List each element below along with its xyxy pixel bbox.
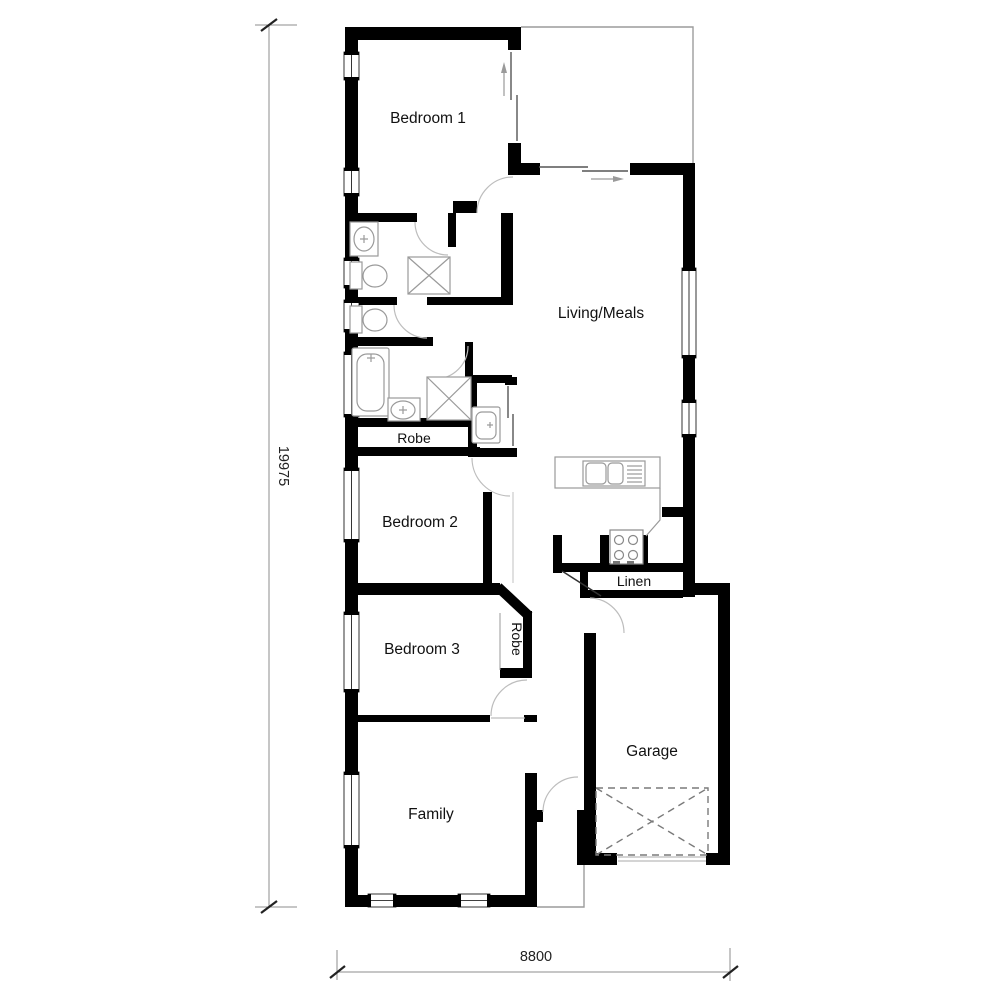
window-glyph	[344, 52, 359, 55]
bathroom-shower	[427, 377, 471, 420]
bedroom2-door	[472, 458, 510, 496]
garage-door-cross	[596, 788, 708, 855]
rear-door	[543, 777, 578, 812]
window-glyph	[487, 894, 490, 907]
window-glyph	[344, 845, 359, 848]
window-glyph	[682, 268, 696, 271]
label-garage: Garage	[626, 743, 678, 760]
vanity-basin	[388, 398, 420, 421]
dim-width: 8800	[520, 949, 552, 965]
dim-depth: 19975	[275, 446, 291, 486]
ensuite-door	[415, 222, 448, 255]
garage-door-panel	[618, 857, 706, 861]
window-glyph	[682, 400, 696, 403]
window-glyph	[344, 772, 359, 775]
bathroom-door	[435, 346, 468, 379]
ensuite-shower	[408, 257, 450, 294]
floor-plan-canvas: Bedroom 1 Living/Meals Robe Bedroom 2 Be…	[0, 0, 1000, 1000]
wc-door	[394, 305, 427, 338]
label-bedroom2: Bedroom 2	[382, 514, 458, 531]
label-family: Family	[408, 806, 454, 823]
label-bedroom3: Bedroom 3	[384, 641, 460, 658]
window-glyph	[344, 689, 359, 692]
bath	[352, 348, 389, 416]
cooktop	[610, 530, 643, 564]
kitchen-sink	[583, 461, 645, 486]
floor-plan-drawing: Bedroom 1 Living/Meals Robe Bedroom 2 Be…	[0, 0, 1000, 1000]
ensuite-toilet	[350, 262, 387, 289]
window-glyph	[368, 894, 371, 907]
ensuite-basin	[350, 222, 378, 256]
window-glyph	[344, 300, 359, 303]
garage-access-door	[590, 598, 624, 633]
window-glyph	[344, 168, 359, 171]
window-glyph	[344, 77, 359, 80]
bedroom3-door	[491, 680, 527, 716]
window-glyph	[344, 468, 359, 471]
dimension-ticks	[261, 19, 738, 978]
window-glyph	[344, 612, 359, 615]
label-living-meals: Living/Meals	[558, 305, 644, 322]
window-glyph	[458, 894, 461, 907]
window-glyph	[344, 193, 359, 196]
wc-toilet	[350, 306, 387, 333]
window-glyph	[682, 355, 696, 358]
window-glyph	[344, 539, 359, 542]
label-robe-main: Robe	[397, 430, 431, 446]
window-glyph	[393, 894, 396, 907]
sliding-doors	[508, 52, 628, 446]
window-glyph	[682, 434, 696, 437]
bedroom1-door	[477, 177, 513, 213]
window-glyph	[344, 258, 359, 261]
label-linen: Linen	[617, 573, 651, 589]
label-bedroom1: Bedroom 1	[390, 110, 466, 127]
laundry-trough	[472, 407, 500, 443]
angled-wall	[498, 587, 529, 616]
walls	[345, 27, 730, 907]
label-robe-bedroom3: Robe	[509, 622, 525, 656]
